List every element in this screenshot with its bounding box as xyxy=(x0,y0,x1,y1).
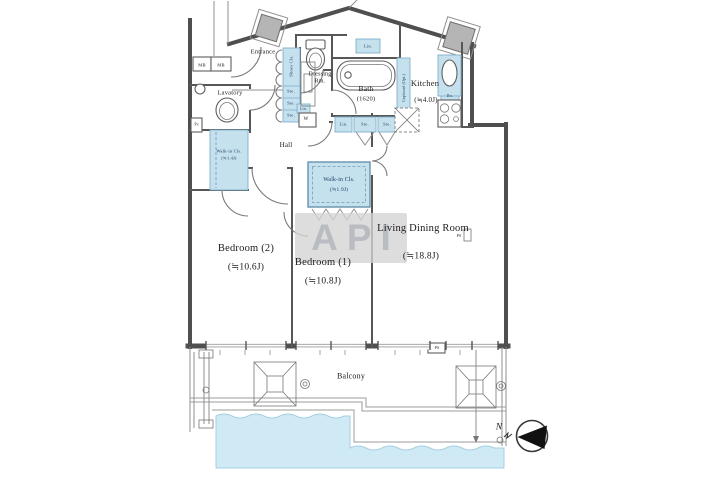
storage-label: Sto. xyxy=(287,90,295,95)
watermark: API xyxy=(295,213,407,263)
toilet-icon xyxy=(306,40,325,70)
disposer-label: Dis. xyxy=(447,94,454,98)
walkin-closet-2-size: (≒1.9J) xyxy=(330,187,348,193)
pipe-space-bottom-label: PS xyxy=(435,346,440,350)
pipe-space-small-label: Ps xyxy=(194,123,198,128)
floorplan-canvas: API Entrance Shoes Cls. Sto. Sto. Sto. L… xyxy=(0,0,710,479)
bedroom-1-label: Bedroom (1) xyxy=(295,257,351,269)
planter-left xyxy=(254,362,310,406)
compass-icon xyxy=(504,421,548,452)
kitchen-pillar-hatch xyxy=(395,108,419,132)
bath-size-label: (1620) xyxy=(357,95,376,102)
storage-label: Sto. xyxy=(287,102,295,107)
hall-label: Hall xyxy=(280,142,293,150)
living-dining-size: (≒18.8J) xyxy=(403,252,439,263)
kitchen-size-label: (≒4.0J) xyxy=(414,97,437,105)
water-feature xyxy=(216,414,504,468)
linen-label: Lin. xyxy=(340,122,348,127)
walkin-closet-1-size: (≒1.4J) xyxy=(221,157,236,162)
balcony-label: Balcony xyxy=(337,373,365,382)
cupboard-label: Cupboard (Opt.) xyxy=(401,74,405,102)
walkin-closet-1-label: Walk-in Cls. xyxy=(216,148,242,153)
bedroom-2-label: Bedroom (2) xyxy=(218,243,274,255)
bedroom-1-size: (≒10.8J) xyxy=(305,277,341,288)
bath-label: Bath xyxy=(359,85,374,93)
bedroom-2-size: (≒10.6J) xyxy=(228,263,264,274)
kitchen-label: Kitchen xyxy=(411,79,439,89)
stove-icon xyxy=(438,100,461,127)
living-dining-label: Living Dining Room xyxy=(377,223,469,235)
balcony-area xyxy=(190,347,506,468)
pipe-space-wall-label: PS xyxy=(457,234,462,238)
windows xyxy=(206,341,498,350)
shoes-closet-label: Shoes Cls. xyxy=(288,55,293,76)
north-label: N xyxy=(496,423,503,434)
walkin-closet-2-label: Walk-in Cls. xyxy=(323,177,355,183)
storage-label: Sto. xyxy=(287,114,295,119)
lavatory-label: Lavatory xyxy=(217,89,242,96)
entrance-label: Entrance xyxy=(251,48,276,55)
washing-machine-label: W xyxy=(303,117,308,123)
linen-label: Lin. xyxy=(300,106,307,110)
linen-label: Lin. xyxy=(364,43,372,48)
meter-box-label: MB xyxy=(217,62,225,67)
meter-box-label: MB xyxy=(198,62,206,67)
dressing-room-label: Dressing Rm. xyxy=(303,71,337,84)
storage-label: Sto. xyxy=(361,122,369,127)
storage-label: Sto. xyxy=(383,122,391,127)
kitchen-sink-icon xyxy=(438,55,461,96)
